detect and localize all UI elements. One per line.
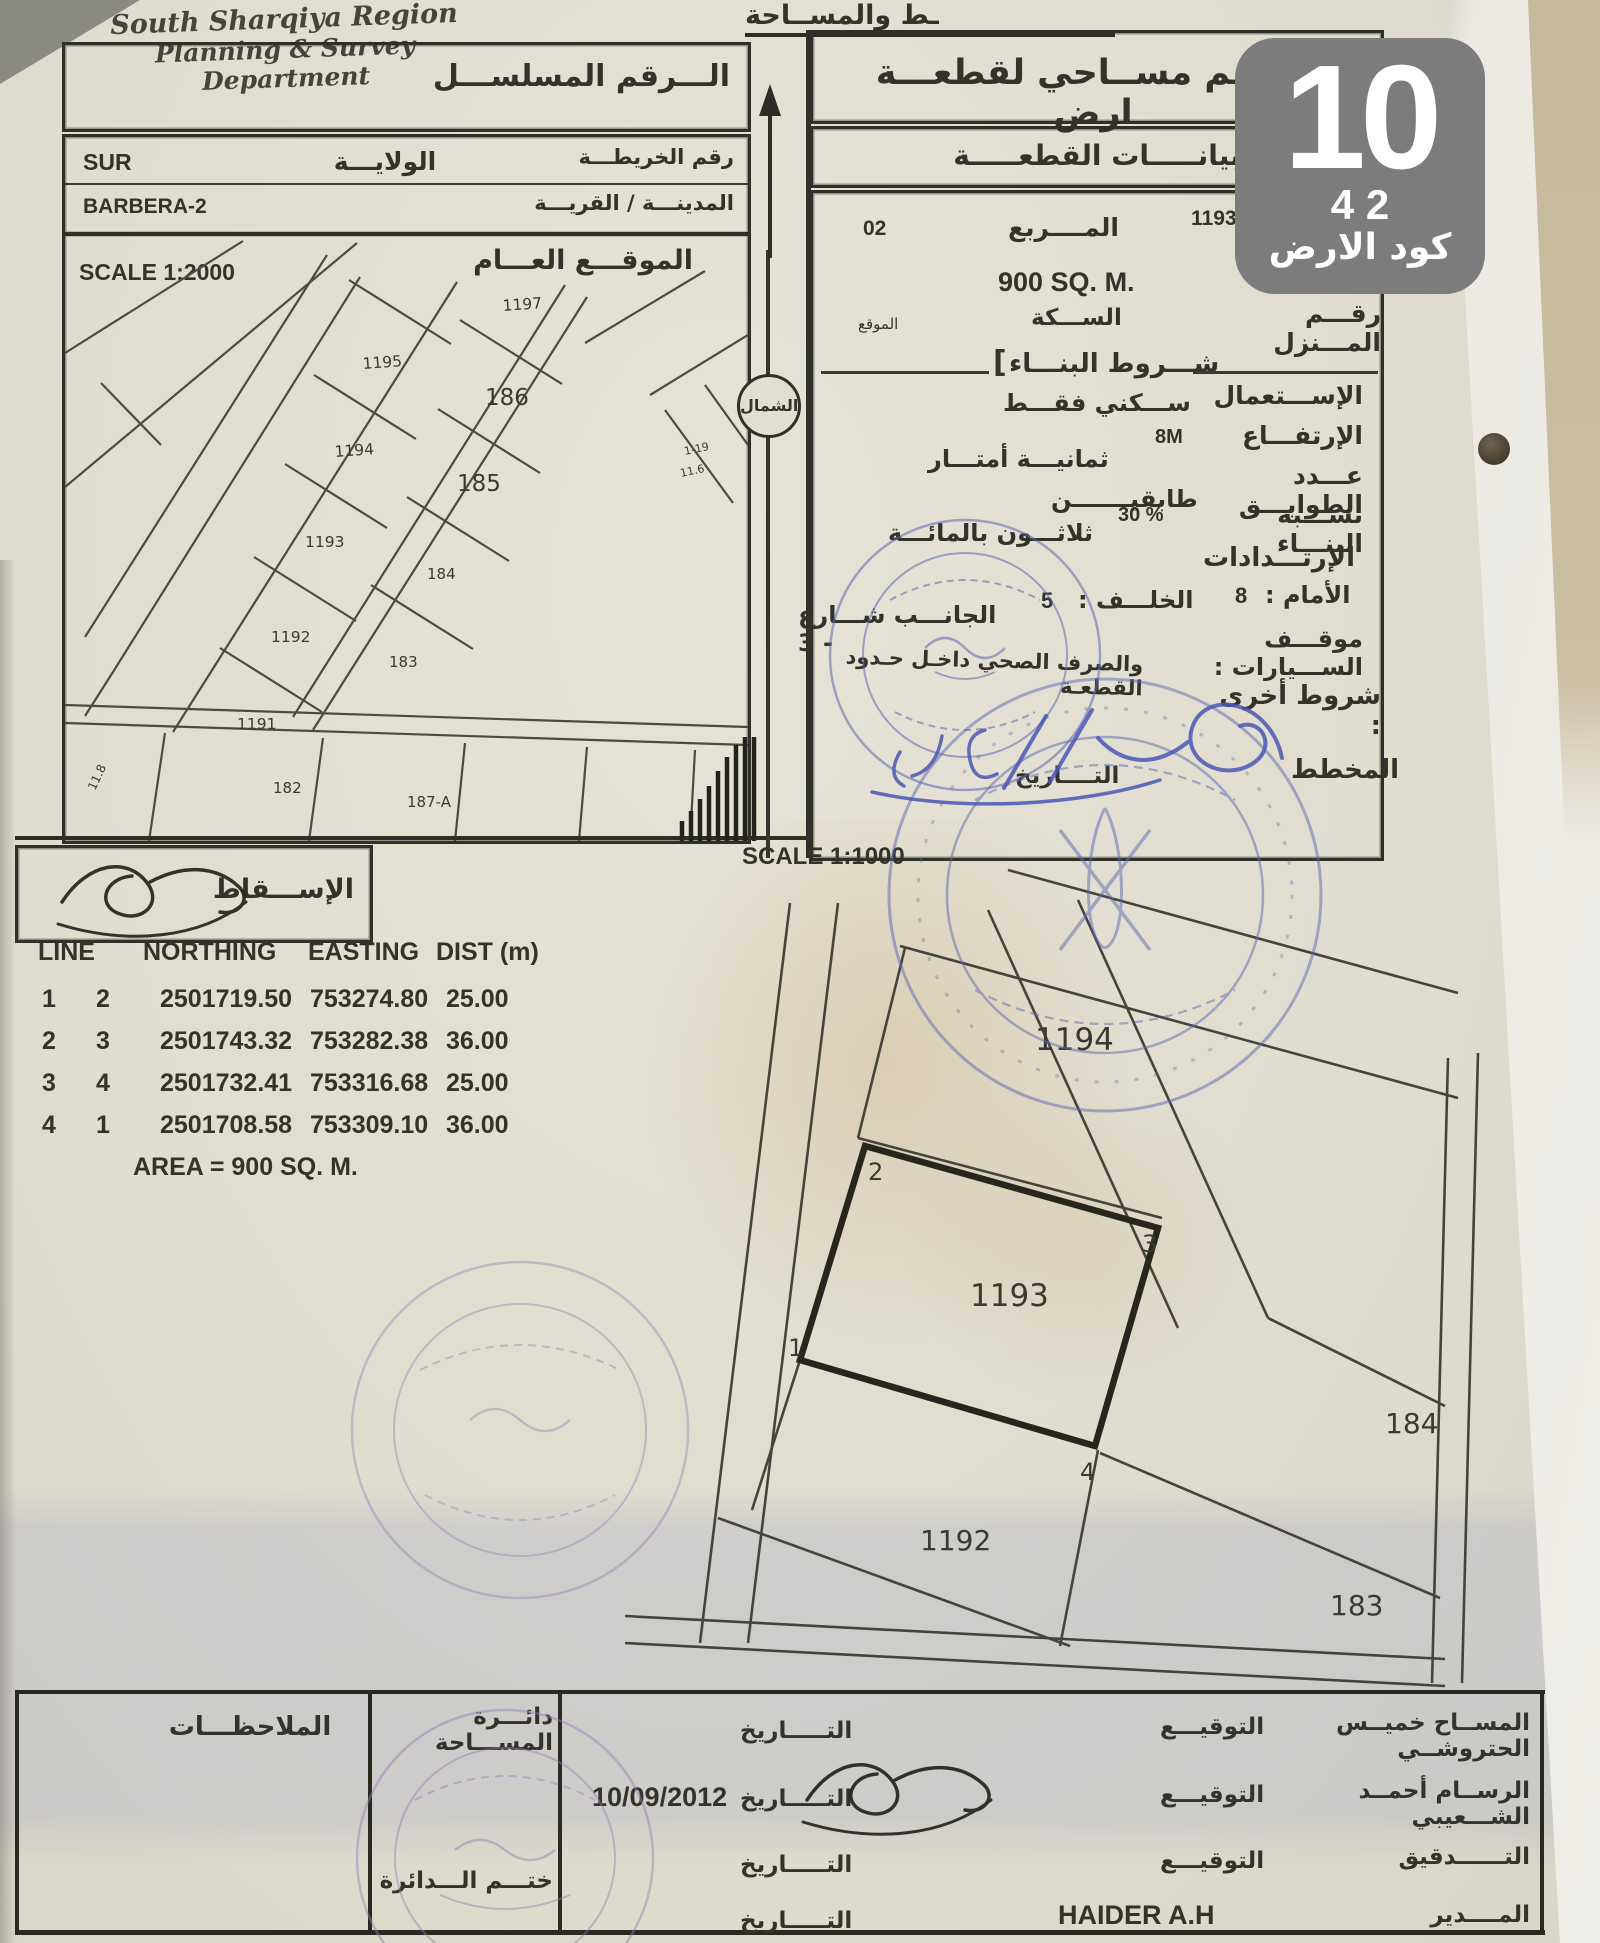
r2-dist: 36.00 bbox=[446, 1027, 509, 1056]
back-value: 5 bbox=[1041, 588, 1053, 614]
col-header-northing: NORTHING bbox=[143, 938, 276, 967]
north-arrow-icon bbox=[745, 80, 795, 260]
projection-box: الإســـقاط bbox=[15, 845, 373, 943]
conditions-title: شـــروط البنـــاء bbox=[1009, 349, 1219, 379]
map-parcel-1193: 1193 bbox=[305, 533, 344, 551]
scale-bars-icon bbox=[678, 733, 770, 841]
r3-to: 4 bbox=[96, 1069, 110, 1098]
map-parcel-1194: 1194 bbox=[334, 440, 375, 461]
back-label: الخلـــف : bbox=[1078, 586, 1193, 614]
street-label: الســـكة bbox=[1031, 305, 1122, 331]
square-value: 02 bbox=[863, 217, 886, 241]
map-parcel-1195: 1195 bbox=[362, 352, 403, 373]
plan-parcel-184: 184 bbox=[1385, 1407, 1438, 1440]
map-parcel-1192: 1192 bbox=[271, 628, 310, 646]
plan-corner-2: 2 bbox=[868, 1158, 883, 1186]
footer-left-border bbox=[15, 1690, 19, 1935]
cadastral-map-1-2000: 1197 1195 186 1194 185 1193 184 1192 183… bbox=[65, 235, 748, 841]
r4-easting: 753309.10 bbox=[310, 1111, 428, 1140]
paper-left-edge bbox=[0, 560, 16, 1943]
land-code-badge: 10 4 2 كود الارض bbox=[1235, 38, 1485, 294]
audit-sig-label: التوقيـــع bbox=[1160, 1848, 1264, 1874]
hole-punch bbox=[1478, 433, 1510, 465]
plan-date-label: التــــاريخ bbox=[1015, 763, 1119, 789]
city-value: BARBERA-2 bbox=[83, 195, 207, 219]
col-header-line: LINE bbox=[38, 938, 95, 967]
r1-to: 2 bbox=[96, 985, 110, 1014]
map-dim-11-8: 11.8 bbox=[85, 762, 109, 792]
r1-from: 1 bbox=[42, 985, 56, 1014]
height-label: الإرتفـــاع bbox=[1193, 421, 1363, 450]
surveyor-date-label: التـــــاريخ bbox=[740, 1718, 852, 1744]
setbacks-title: الإرتـــدادات bbox=[1203, 543, 1355, 573]
audit-role: التــــــدقيق bbox=[1380, 1844, 1530, 1870]
wilaya-value: SUR bbox=[83, 149, 132, 176]
plan-parcel-1192: 1192 bbox=[920, 1524, 991, 1557]
street-note: الموقع bbox=[858, 315, 898, 333]
map-parcel-187A: 187-A bbox=[407, 793, 452, 811]
front-label: الأمام : bbox=[1265, 581, 1351, 609]
draftsman-role: الرســام أحمــد الشـــعيبي bbox=[1270, 1778, 1530, 1830]
map-parcel-1197: 1197 bbox=[502, 294, 543, 315]
plot-number-value: 1193 bbox=[1191, 207, 1237, 231]
manager-name: HAIDER A.H bbox=[1058, 1900, 1215, 1931]
use-label: الإســـتعمال bbox=[1193, 381, 1363, 410]
land-code-number: 10 bbox=[1235, 44, 1485, 192]
col-header-dist: DIST (m) bbox=[436, 938, 539, 967]
notes-label: الملاحظـــات bbox=[150, 1712, 350, 1742]
serial-number-label: الـــرقم المسلســـل bbox=[433, 59, 730, 94]
r3-northing: 2501732.41 bbox=[160, 1069, 292, 1098]
ratio-value: 30 % bbox=[1118, 504, 1164, 527]
footer-divider-dept bbox=[558, 1690, 562, 1935]
map-parcel-186: 186 bbox=[485, 385, 529, 411]
north-label-circle: الشمال bbox=[737, 374, 801, 438]
map-number-label: رقم الخريطـــة bbox=[578, 145, 734, 169]
manager-date-label: التـــــاريخ bbox=[740, 1908, 852, 1934]
admin-row-divider bbox=[65, 183, 748, 185]
survey-dept-label: دائـــرة المســـاحة bbox=[375, 1704, 553, 1756]
scanned-land-survey-document: South Sharqiya Region Planning & Survey … bbox=[0, 0, 1600, 1943]
height-value: 8M bbox=[1155, 426, 1183, 449]
map-parcel-182: 182 bbox=[273, 779, 302, 797]
map-dim-11-6: 11.6 bbox=[679, 462, 706, 480]
footer-right-border bbox=[1540, 1690, 1544, 1935]
r2-to: 3 bbox=[96, 1027, 110, 1056]
map-parcel-185: 185 bbox=[457, 471, 501, 497]
projection-label: الإســـقاط bbox=[213, 874, 354, 905]
serial-number-box: الـــرقم المسلســـل bbox=[62, 42, 751, 132]
house-number-label: رقـــم المـــنزل bbox=[1198, 299, 1381, 357]
ratio-value-ar: ثلاثـــون بالمائـــة bbox=[888, 519, 1093, 547]
manager-role: المــــدير bbox=[1400, 1902, 1530, 1928]
r2-easting: 753282.38 bbox=[310, 1027, 428, 1056]
plan-parcel-1193: 1193 bbox=[970, 1278, 1049, 1314]
plan-parcel-1194: 1194 bbox=[1035, 1022, 1114, 1058]
plan-corner-4: 4 bbox=[1080, 1458, 1095, 1486]
conditions-line-left bbox=[821, 371, 989, 374]
footer-top-border bbox=[15, 1690, 1545, 1694]
parking-label: موقـــف الســـيارات : bbox=[1138, 625, 1363, 681]
r4-dist: 36.00 bbox=[446, 1111, 509, 1140]
front-value: 8 bbox=[1235, 583, 1247, 609]
map-parcel-183: 183 bbox=[389, 653, 418, 671]
area-value: 900 SQ. M. bbox=[998, 267, 1135, 298]
coordinates-table: LINE NORTHING EASTING DIST (m) 1 2 25017… bbox=[38, 938, 578, 1188]
draftsman-date-value: 10/09/2012 bbox=[592, 1782, 727, 1813]
r4-northing: 2501708.58 bbox=[160, 1111, 292, 1140]
audit-date-label: التـــــاريخ bbox=[740, 1852, 852, 1878]
city-label: المدينـــة / القريـــة bbox=[534, 191, 734, 215]
r1-northing: 2501719.50 bbox=[160, 985, 292, 1014]
r3-dist: 25.00 bbox=[446, 1069, 509, 1098]
wilaya-label: الولايـــة bbox=[315, 147, 455, 176]
dept-stamp-label: ختـــم الـــدائرة bbox=[375, 1868, 553, 1894]
r1-easting: 753274.80 bbox=[310, 985, 428, 1014]
r2-northing: 2501743.32 bbox=[160, 1027, 292, 1056]
other-conditions-label: شروط أخرى : bbox=[1208, 681, 1381, 741]
plan-corner-1: 1 bbox=[788, 1334, 803, 1362]
use-value: ســـكني فقـــط bbox=[1003, 389, 1191, 417]
site-plan-drawing: 1194 1193 184 1192 183 2 3 4 1 bbox=[620, 828, 1540, 1700]
draftsman-sig-label: التوقيـــع bbox=[1160, 1782, 1264, 1808]
r3-easting: 753316.68 bbox=[310, 1069, 428, 1098]
plan-corner-3: 3 bbox=[1142, 1230, 1157, 1258]
land-code-sub: 4 2 bbox=[1235, 184, 1485, 226]
map-parcel-184: 184 bbox=[427, 565, 456, 583]
conditions-bracket: [ bbox=[993, 345, 1007, 380]
other-conditions-value: والصرف الصحي داخـل حـدود القطعـة bbox=[802, 644, 1143, 701]
plan-label: المخطط bbox=[1291, 755, 1399, 785]
surveyor-role: المســاح خميــس الحتروشــي bbox=[1270, 1710, 1530, 1762]
general-location-map: الموقـــع العـــام SCALE 1:2000 bbox=[62, 232, 751, 844]
r1-dist: 25.00 bbox=[446, 985, 509, 1014]
footer-divider-notes bbox=[368, 1690, 372, 1935]
map-dim-1-19: 1-19 bbox=[683, 440, 710, 458]
r4-from: 4 bbox=[42, 1111, 56, 1140]
admin-info-box: SUR BARBERA-2 الولايـــة رقم الخريطـــة … bbox=[62, 134, 751, 236]
r2-from: 2 bbox=[42, 1027, 56, 1056]
area-total: AREA = 900 SQ. M. bbox=[133, 1153, 358, 1182]
surveyor-sig-label: التوقيـــع bbox=[1160, 1714, 1264, 1740]
square-label: المــــربع bbox=[1008, 213, 1119, 242]
r4-to: 1 bbox=[96, 1111, 110, 1140]
r3-from: 3 bbox=[42, 1069, 56, 1098]
plan-parcel-183: 183 bbox=[1330, 1589, 1383, 1622]
north-label: الشمال bbox=[740, 396, 798, 415]
height-value-ar: ثمانيـــة أمتـــار bbox=[928, 445, 1109, 473]
land-code-caption: كود الارض bbox=[1235, 228, 1485, 268]
conditions-line-right bbox=[1193, 371, 1378, 374]
draftsman-date-label: التـــــاريخ bbox=[740, 1786, 852, 1812]
col-header-easting: EASTING bbox=[308, 938, 419, 967]
map-parcel-1191: 1191 bbox=[237, 715, 276, 733]
